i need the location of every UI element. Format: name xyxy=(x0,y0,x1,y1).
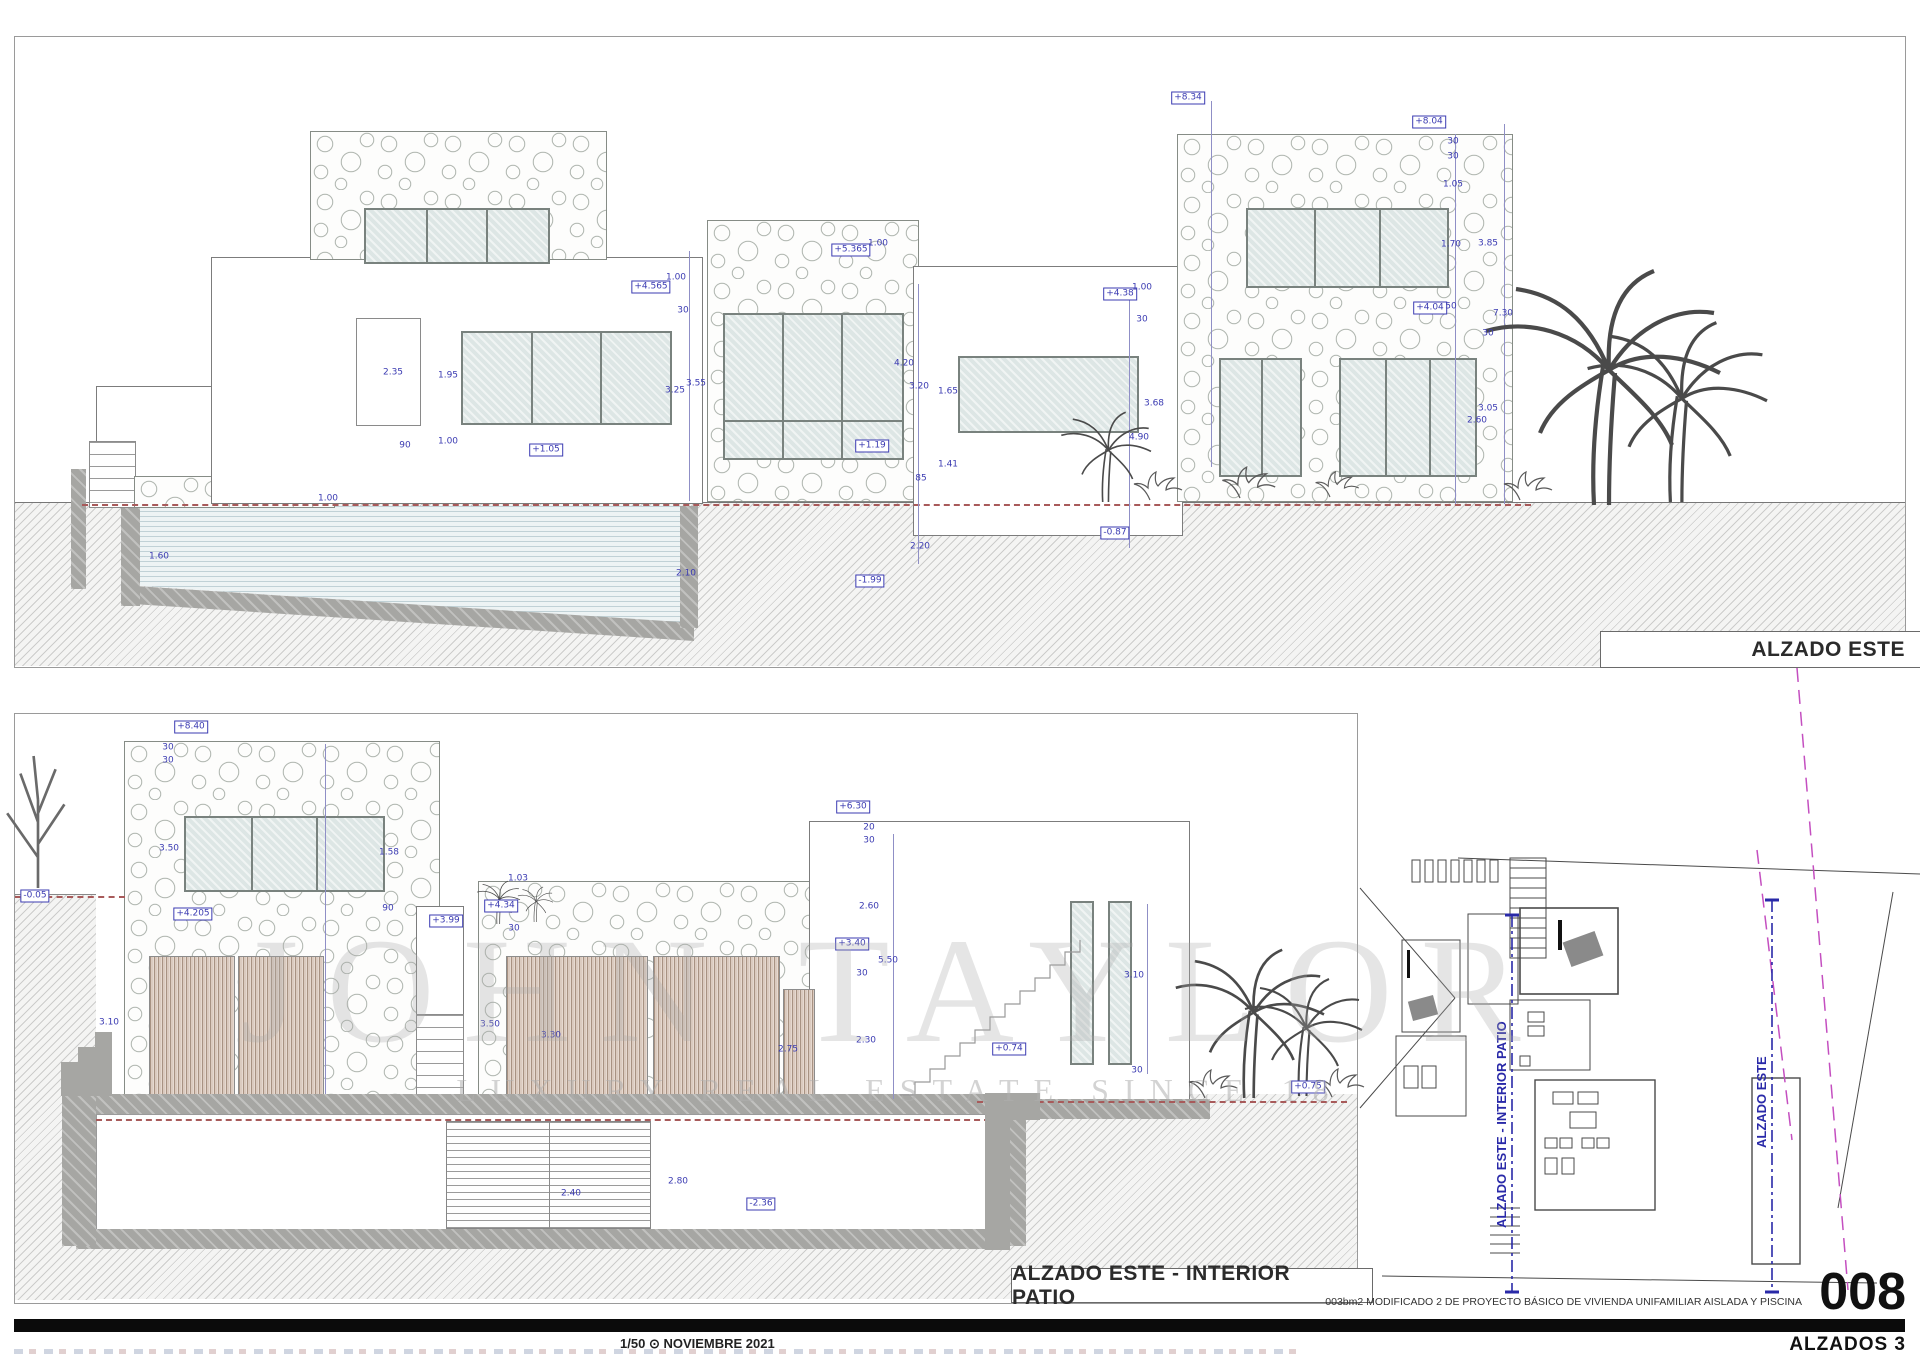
dimension-label: 30 xyxy=(1482,330,1493,339)
view-title-east: ALZADO ESTE xyxy=(1600,631,1920,668)
dimension-label: -2.36 xyxy=(746,1198,775,1211)
dimension-label: -0.05 xyxy=(20,890,49,903)
dimension-label: 30 xyxy=(677,307,688,316)
window xyxy=(1339,358,1477,477)
pool-steps xyxy=(89,441,136,508)
dimension-label: 7.30 xyxy=(1493,310,1513,319)
dimension-label: 1.00 xyxy=(318,495,338,504)
dimension-label: 85 xyxy=(915,475,926,484)
dimension-label: +5.365 xyxy=(831,244,870,257)
dimension-label: +1.19 xyxy=(855,440,889,453)
dimension-label: 30 xyxy=(162,744,173,753)
dimension-label: 90 xyxy=(399,442,410,451)
dimension-label: +8.34 xyxy=(1171,92,1205,105)
view-title-label: ALZADO ESTE xyxy=(1751,638,1905,662)
dimension-label: 30 xyxy=(863,837,874,846)
retaining-wall xyxy=(62,1094,96,1246)
window xyxy=(461,331,672,425)
dim-line xyxy=(1129,288,1130,548)
dimension-label: 50 xyxy=(1445,303,1456,312)
dim-line xyxy=(689,251,690,501)
dimension-label: +4.565 xyxy=(631,281,670,294)
grade-line xyxy=(82,504,1531,506)
dimension-label: 1.70 xyxy=(1441,241,1461,250)
dim-line xyxy=(1211,101,1212,467)
dim-line xyxy=(1455,134,1456,504)
dimension-label: 3.25 xyxy=(665,387,685,396)
dimension-label: 3.68 xyxy=(1144,400,1164,409)
dimension-label: +6.30 xyxy=(836,801,870,814)
section-label-east: ALZADO ESTE xyxy=(1754,1056,1769,1148)
dimension-label: +4.205 xyxy=(173,908,212,921)
dimension-label: 1.00 xyxy=(438,438,458,447)
sheet-number: 008 xyxy=(1790,1266,1906,1318)
dimension-label: 30 xyxy=(1136,316,1147,325)
dimension-label: +8.40 xyxy=(174,721,208,734)
dimension-label: 2.10 xyxy=(676,570,696,579)
window xyxy=(723,313,904,460)
window xyxy=(958,356,1139,433)
dimension-label: 1.95 xyxy=(438,372,458,381)
dimension-label: 2.35 xyxy=(383,369,403,378)
dimension-label: 2.60 xyxy=(1467,417,1487,426)
grade-post xyxy=(71,469,86,589)
dimension-label: 2.80 xyxy=(668,1178,688,1187)
dimension-label: -1.99 xyxy=(855,575,884,588)
wood-slat-panel xyxy=(149,956,235,1096)
dimension-label: 1.58 xyxy=(379,849,399,858)
dimension-label: 1.60 xyxy=(149,553,169,562)
dimension-label: 3.55 xyxy=(686,380,706,389)
microtext-row xyxy=(14,1349,1304,1354)
dimension-label: 3.10 xyxy=(99,1019,119,1028)
dimension-label: 3.50 xyxy=(159,845,179,854)
garage-door xyxy=(446,1121,651,1229)
dimension-label: 1.00 xyxy=(1132,284,1152,293)
project-note: 003bm2 MODIFICADO 2 DE PROYECTO BÁSICO D… xyxy=(900,1296,1802,1308)
dim-line xyxy=(918,284,919,564)
dimension-label: 1.00 xyxy=(868,240,888,249)
dimension-label: 3.20 xyxy=(909,383,929,392)
dimension-label: 2.40 xyxy=(561,1190,581,1199)
elevation-east: ALZADO ESTE +8.34+8.0430301.051.703.85+4… xyxy=(14,36,1906,668)
dimension-label: +1.05 xyxy=(529,444,563,457)
dimension-label: 30 xyxy=(1447,153,1458,162)
drawing-sheet: ALZADO ESTE +8.34+8.0430301.051.703.85+4… xyxy=(0,0,1920,1357)
dimension-label: 3.05 xyxy=(1478,405,1498,414)
grade-line xyxy=(96,1119,1000,1121)
dimension-label: 30 xyxy=(162,757,173,766)
bottom-slab xyxy=(76,1229,991,1249)
titleblock-bar xyxy=(14,1319,1905,1332)
window xyxy=(1219,358,1302,477)
pool-wall-left xyxy=(121,506,140,606)
dimension-label: 1.65 xyxy=(938,388,958,397)
watermark-tagline: LUXURY REAL ESTATE SINCE 18 xyxy=(330,1072,1470,1109)
window xyxy=(364,208,550,264)
sheet-name: ALZADOS 3 xyxy=(1606,1334,1906,1356)
dimension-label: 3.85 xyxy=(1478,240,1498,249)
dimension-label: 1.05 xyxy=(1443,181,1463,190)
window xyxy=(184,816,385,892)
dimension-label: +8.04 xyxy=(1412,116,1446,129)
dimension-label: 1.03 xyxy=(508,875,528,884)
dimension-label: -0.87 xyxy=(1100,527,1129,540)
window xyxy=(1246,208,1449,288)
dimension-label: 30 xyxy=(1447,138,1458,147)
dimension-label: 2.20 xyxy=(910,543,930,552)
dimension-label: 4.20 xyxy=(894,360,914,369)
dimension-label: 1.41 xyxy=(938,461,958,470)
watermark-brand: JOHN TAYLOR xyxy=(240,905,1380,1077)
dimension-label: 4.90 xyxy=(1129,434,1149,443)
dimension-label: 20 xyxy=(863,824,874,833)
pool-wall-right xyxy=(680,506,698,628)
dimension-label: +4.04 xyxy=(1413,302,1447,315)
dimension-label: 1.00 xyxy=(666,274,686,283)
